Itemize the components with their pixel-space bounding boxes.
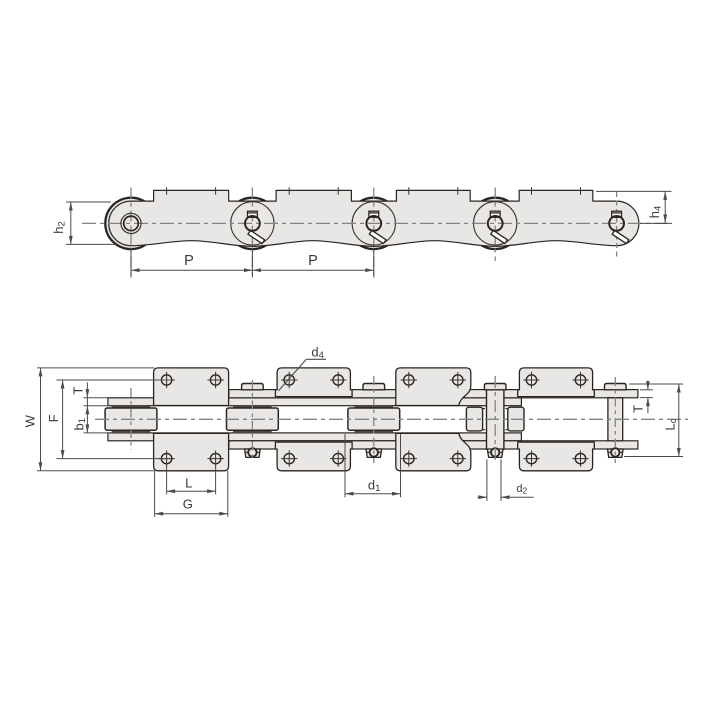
svg-text:F: F (46, 414, 61, 422)
svg-text:W: W (23, 414, 38, 427)
svg-text:P: P (308, 253, 318, 269)
svg-text:L: L (185, 476, 192, 491)
svg-text:T: T (70, 387, 85, 395)
svg-text:G: G (183, 497, 193, 512)
svg-text:P: P (184, 253, 194, 269)
svg-text:d2: d2 (516, 483, 527, 496)
svg-text:T: T (631, 405, 646, 413)
